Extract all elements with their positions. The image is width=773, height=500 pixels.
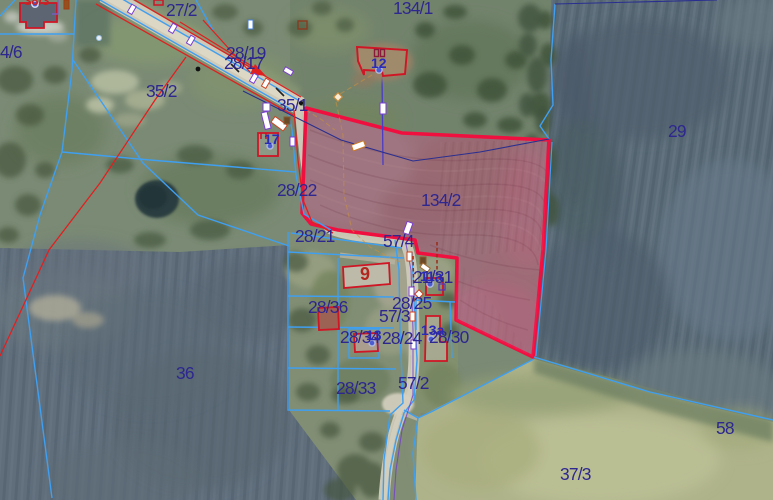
svg-text:134/1: 134/1 bbox=[393, 0, 433, 18]
svg-text:13: 13 bbox=[366, 327, 382, 343]
svg-text:12: 12 bbox=[371, 55, 387, 71]
svg-text:58: 58 bbox=[716, 418, 734, 438]
svg-text:36: 36 bbox=[176, 363, 194, 383]
svg-text:28/21: 28/21 bbox=[295, 226, 335, 246]
svg-text:57/3: 57/3 bbox=[379, 306, 410, 326]
svg-text:28/24: 28/24 bbox=[382, 328, 423, 348]
svg-text:37/3: 37/3 bbox=[560, 464, 591, 484]
svg-text:13a: 13a bbox=[421, 322, 445, 338]
svg-text:38/3: 38/3 bbox=[24, 0, 49, 8]
svg-text:35/1: 35/1 bbox=[277, 95, 308, 115]
svg-text:28/17: 28/17 bbox=[224, 53, 264, 73]
svg-text:28/33: 28/33 bbox=[336, 378, 376, 398]
svg-text:27/2: 27/2 bbox=[166, 0, 197, 20]
svg-text:57/2: 57/2 bbox=[398, 373, 429, 393]
svg-text:29: 29 bbox=[668, 121, 686, 141]
svg-text:11a: 11a bbox=[420, 268, 443, 284]
svg-text:35/2: 35/2 bbox=[146, 81, 177, 101]
svg-text:28/22: 28/22 bbox=[277, 180, 317, 200]
svg-text:9: 9 bbox=[360, 264, 370, 284]
svg-text:17: 17 bbox=[264, 131, 280, 147]
svg-text:28/36: 28/36 bbox=[308, 297, 348, 317]
svg-text:4/6: 4/6 bbox=[0, 42, 22, 62]
svg-text:134/2: 134/2 bbox=[421, 190, 461, 210]
svg-text:57/4: 57/4 bbox=[383, 231, 415, 251]
